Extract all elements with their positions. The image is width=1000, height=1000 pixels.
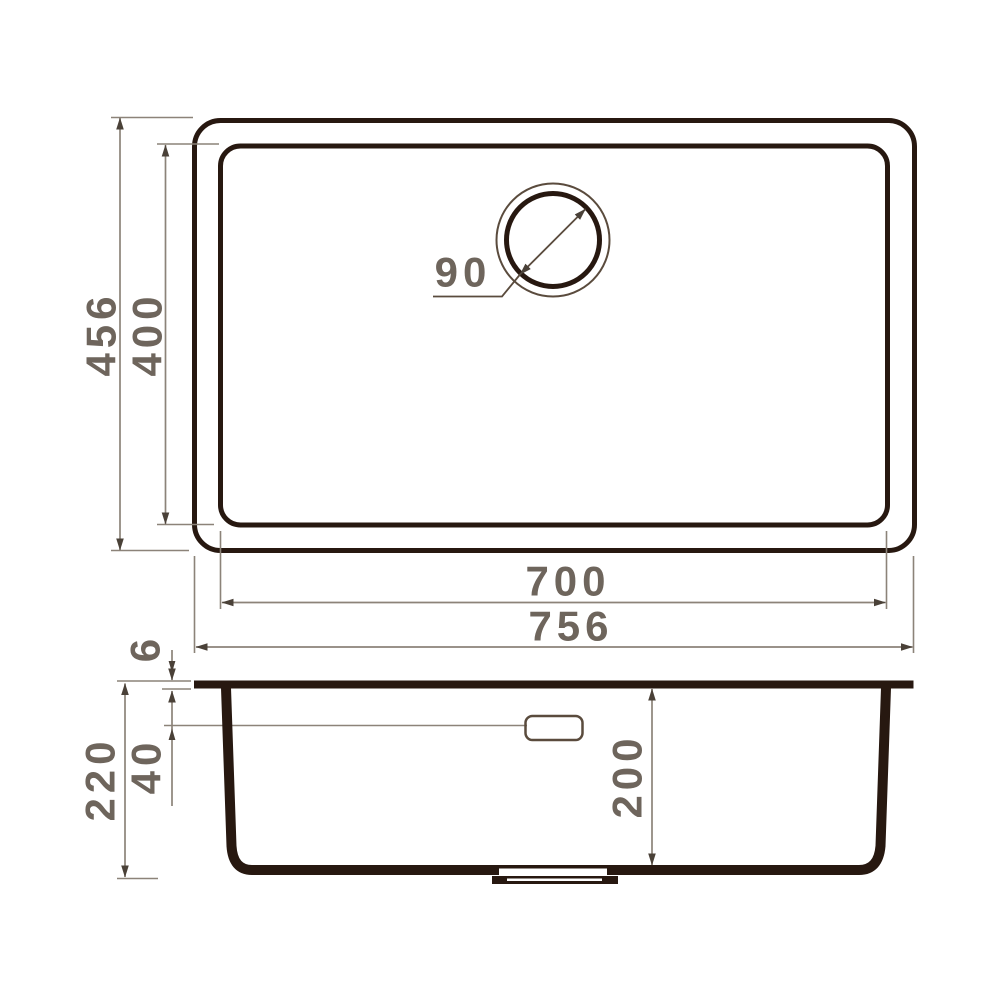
drawing-svg: 90 456 400 700 756: [0, 0, 1000, 1000]
drain-fitting-slit: [507, 879, 602, 882]
drain-diameter-arrow: [520, 209, 586, 275]
dim-label-bowl-height: 200: [604, 733, 651, 818]
dim-label-rim-thickness: 6: [122, 634, 169, 662]
top-view: 90: [195, 121, 915, 551]
dim-label-bowl-width: 700: [525, 558, 610, 605]
top-view-dimensions: 456 400 700 756: [78, 118, 914, 654]
drain-inner-circle: [507, 194, 600, 287]
dim-arrow-40-bottom: [169, 729, 176, 741]
dim-label-bowl-depth: 400: [124, 291, 171, 376]
dim-arrow-6-extra: [169, 661, 176, 673]
top-view-bowl-edge: [221, 146, 888, 525]
dim-label-overall-depth: 456: [78, 291, 125, 376]
drain-fitting-slot: [499, 869, 607, 877]
top-view-outer-rim: [195, 121, 915, 551]
drain-outer-circle: [497, 184, 610, 297]
dim-label-overall-height: 220: [77, 736, 124, 821]
section-view-dimensions: 6 40 220 200: [77, 634, 653, 879]
section-view: [164, 681, 914, 885]
dim-label-overflow-offset: 40: [123, 738, 170, 795]
overflow-opening: [526, 716, 583, 740]
sink-dimension-drawing: 90 456 400 700 756: [0, 0, 1000, 1000]
dim-label-drain-diameter: 90: [435, 249, 492, 296]
section-rim: [194, 681, 914, 689]
dim-label-overall-width: 756: [528, 603, 613, 650]
